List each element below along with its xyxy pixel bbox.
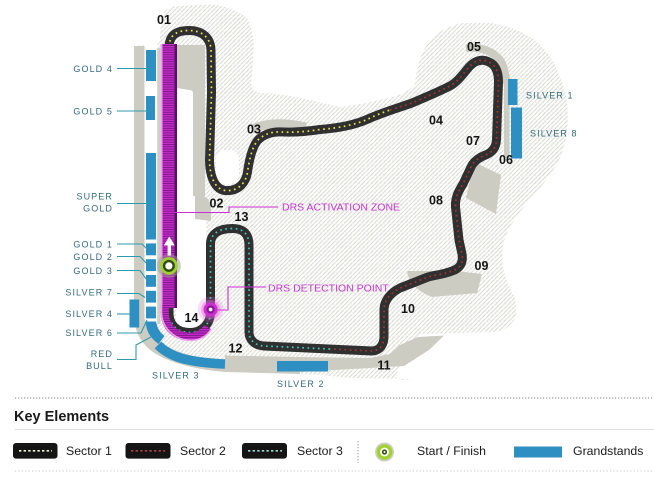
svg-text:Grandstands: Grandstands [573, 444, 643, 458]
svg-text:11: 11 [377, 359, 390, 373]
svg-text:BULL: BULL [86, 361, 113, 371]
svg-text:13: 13 [235, 210, 249, 224]
svg-text:01: 01 [157, 13, 171, 27]
svg-text:SILVER 8: SILVER 8 [530, 129, 578, 139]
svg-text:DRS ACTIVATION ZONE: DRS ACTIVATION ZONE [282, 202, 400, 214]
svg-text:GOLD: GOLD [83, 204, 113, 214]
svg-text:09: 09 [475, 259, 489, 273]
svg-text:RED: RED [91, 349, 113, 359]
svg-text:04: 04 [429, 114, 443, 128]
svg-text:SILVER 4: SILVER 4 [65, 309, 113, 319]
svg-text:GOLD 4: GOLD 4 [73, 64, 113, 74]
svg-text:GOLD 3: GOLD 3 [73, 266, 113, 276]
svg-text:SUPER: SUPER [76, 192, 113, 202]
svg-text:GOLD 2: GOLD 2 [73, 252, 113, 262]
svg-text:DRS DETECTION POINT: DRS DETECTION POINT [268, 283, 389, 295]
svg-text:SILVER 1: SILVER 1 [526, 91, 574, 101]
svg-text:Sector 1: Sector 1 [66, 444, 112, 458]
svg-text:14: 14 [185, 311, 199, 325]
svg-text:02: 02 [210, 197, 224, 211]
svg-text:GOLD 5: GOLD 5 [73, 107, 113, 117]
svg-text:Sector 2: Sector 2 [180, 444, 226, 458]
svg-text:Sector 3: Sector 3 [297, 444, 343, 458]
svg-text:SILVER 6: SILVER 6 [65, 328, 113, 338]
svg-text:05: 05 [467, 40, 481, 54]
svg-text:10: 10 [401, 302, 415, 316]
svg-text:SILVER 3: SILVER 3 [152, 371, 200, 381]
svg-text:Key Elements: Key Elements [14, 409, 109, 425]
svg-text:07: 07 [466, 134, 480, 148]
svg-text:12: 12 [229, 342, 243, 356]
svg-text:03: 03 [247, 123, 261, 137]
svg-text:06: 06 [499, 153, 513, 167]
svg-text:Start / Finish: Start / Finish [417, 444, 486, 458]
svg-text:08: 08 [429, 194, 443, 208]
svg-text:GOLD 1: GOLD 1 [73, 240, 113, 250]
svg-text:SILVER 7: SILVER 7 [65, 288, 113, 298]
svg-text:SILVER 2: SILVER 2 [277, 379, 325, 389]
